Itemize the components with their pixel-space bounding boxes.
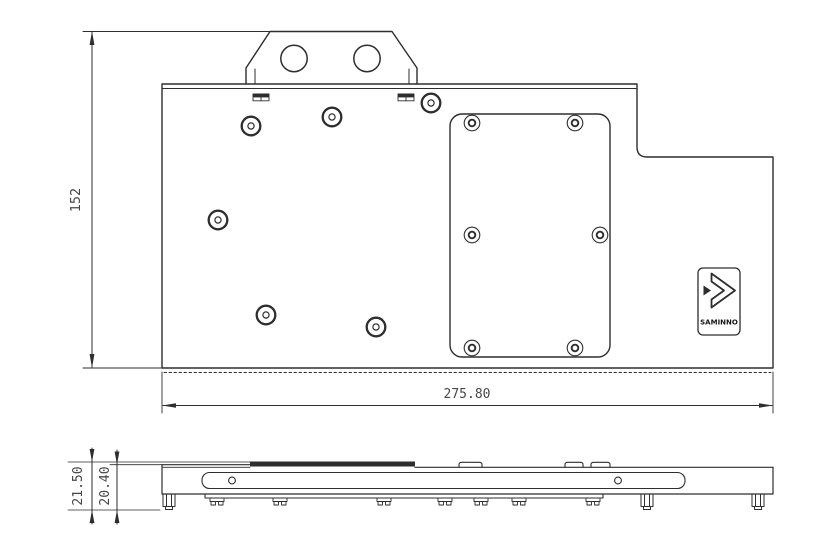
dimension-side-body-20-40: 20.40 (98, 450, 162, 524)
brand-wordmark: SAMINNO (700, 319, 738, 327)
core-screw (567, 340, 583, 356)
standoff-peg (752, 494, 764, 510)
brand-chevron-icon (704, 274, 736, 308)
retention-clips (253, 94, 414, 101)
mounting-screw (242, 117, 261, 136)
side-slot (202, 473, 685, 489)
side-view (162, 462, 773, 510)
standoff-peg (641, 494, 653, 510)
core-plate (450, 114, 610, 357)
core-screw (464, 227, 480, 243)
waterblock-drawing: SAMINNO 152 275.80 (0, 0, 820, 546)
standoff-pegs (163, 494, 764, 510)
dim-height-label: 152 (68, 188, 84, 212)
port-hole-left (281, 45, 307, 71)
top-bumps (459, 462, 610, 467)
dimension-width-275-80: 275.80 (162, 372, 773, 413)
core-screw (592, 227, 608, 243)
dimension-side-total-21-50: 21.50 (68, 448, 250, 524)
technical-drawing-page: SAMINNO 152 275.80 (0, 0, 820, 546)
plate-mounting-screws (209, 94, 441, 337)
core-screw (464, 340, 480, 356)
mounting-screw (257, 306, 276, 325)
arrowhead-down (90, 449, 95, 462)
terminal-block (246, 32, 417, 85)
arrowhead-up (90, 31, 95, 45)
mounting-screw (367, 318, 386, 337)
slot-screw-hole (615, 477, 622, 484)
dim-side-body-label: 20.40 (98, 466, 113, 505)
arrowhead-down (90, 354, 95, 368)
port-hole-right (354, 45, 380, 71)
arrowhead-up (115, 510, 120, 523)
arrowhead-up (90, 510, 95, 523)
terminal-profile-bar (250, 462, 415, 467)
arrowhead-down (115, 452, 120, 465)
dim-side-total-label: 21.50 (71, 466, 86, 505)
standoff-peg (163, 494, 175, 510)
mounting-screw (209, 211, 228, 230)
top-view: SAMINNO (162, 32, 773, 373)
logo-badge: SAMINNO (698, 268, 740, 335)
arrowhead-left (162, 403, 176, 408)
core-screw (567, 115, 583, 131)
mounting-screw (323, 108, 342, 127)
dim-width-label: 275.80 (444, 387, 491, 402)
bottom-clips (210, 498, 600, 505)
core-screw (464, 115, 480, 131)
slot-screw-hole (229, 477, 236, 484)
mounting-screw (422, 94, 441, 113)
dimension-height-152: 152 (68, 31, 269, 368)
arrowhead-right (759, 403, 773, 408)
